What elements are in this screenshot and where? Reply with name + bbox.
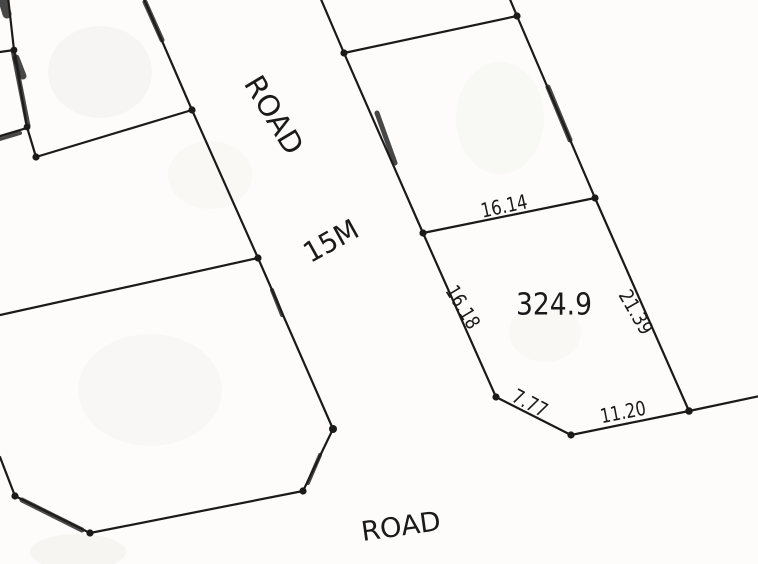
dimension-label-left: 16.18 bbox=[441, 281, 486, 334]
survey-point bbox=[32, 153, 39, 160]
dimension-label-right: 21.39 bbox=[614, 285, 659, 339]
dimension-label-top: 16.14 bbox=[479, 189, 530, 222]
boundary-continuation-right bbox=[689, 396, 758, 411]
road-name-label-bottom: ROAD bbox=[359, 506, 443, 548]
ink-smudge bbox=[145, 2, 162, 40]
road-width-label: 15M bbox=[298, 213, 365, 270]
survey-point bbox=[567, 431, 574, 438]
survey-point bbox=[24, 124, 31, 131]
survey-point bbox=[188, 106, 195, 113]
shade-blob bbox=[30, 534, 126, 564]
road-name-label-vertical: ROAD bbox=[237, 69, 310, 160]
ink-smudge bbox=[548, 87, 570, 140]
survey-point bbox=[492, 393, 499, 400]
dimension-label-bottom-left: 7.77 bbox=[508, 384, 552, 423]
scan-shading bbox=[30, 26, 581, 564]
ink-smudge bbox=[22, 500, 82, 530]
survey-point bbox=[329, 425, 337, 433]
cadastral-survey-map: ROAD 15M ROAD 324.9 16.14 16.18 21.39 7.… bbox=[0, 0, 758, 564]
survey-point bbox=[340, 49, 347, 56]
survey-point bbox=[86, 529, 93, 536]
scanned-map-page: ROAD 15M ROAD 324.9 16.14 16.18 21.39 7.… bbox=[0, 0, 758, 564]
ink-smudge bbox=[377, 113, 395, 163]
survey-point bbox=[685, 407, 693, 415]
parcel-area-label: 324.9 bbox=[516, 288, 592, 323]
shade-blob bbox=[456, 62, 544, 174]
ink-smudge bbox=[3, 1, 7, 14]
map-labels: ROAD 15M ROAD 324.9 16.14 16.18 21.39 7.… bbox=[237, 69, 658, 548]
survey-point bbox=[513, 12, 520, 19]
ink-smudge bbox=[272, 290, 282, 315]
dimension-label-bottom-right: 11.20 bbox=[598, 396, 648, 428]
upper-parcel-bottom-edge bbox=[36, 110, 192, 157]
shade-blob bbox=[48, 26, 152, 118]
survey-point bbox=[419, 229, 426, 236]
shade-blob bbox=[78, 334, 222, 446]
ink-smudge bbox=[308, 455, 320, 483]
right-parcel-divider-edge bbox=[344, 16, 517, 53]
survey-point bbox=[11, 47, 18, 54]
big-parcel-lower-boundary bbox=[0, 429, 333, 533]
road-right-boundary-line bbox=[320, 0, 496, 397]
survey-point bbox=[299, 487, 306, 494]
survey-point bbox=[11, 492, 18, 499]
survey-point bbox=[591, 194, 598, 201]
survey-point bbox=[254, 254, 261, 261]
right-parcel-boundaries bbox=[344, 0, 758, 435]
big-parcel-top-edge bbox=[0, 258, 258, 315]
